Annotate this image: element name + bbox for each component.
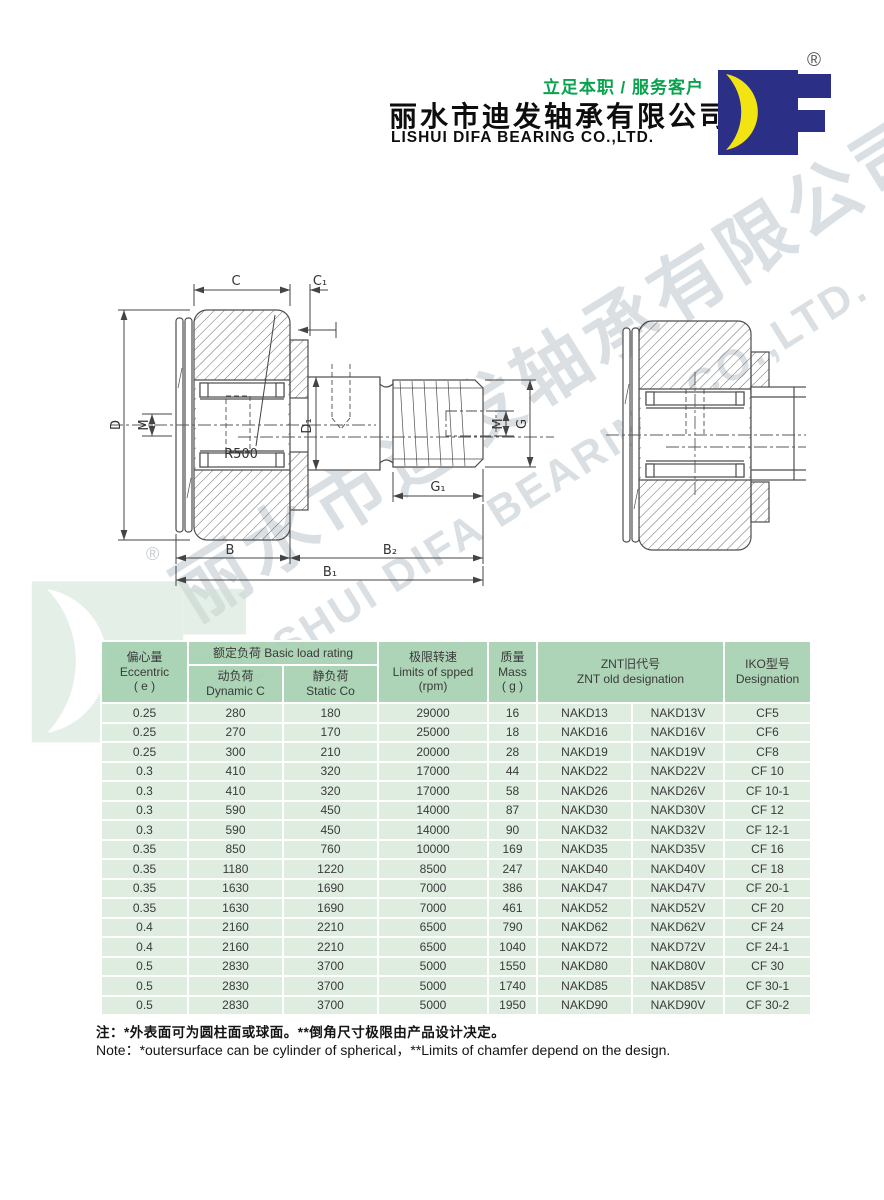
col-header-speed: 极限转速 Limits of spped (rpm) bbox=[378, 641, 488, 703]
table-cell: 2830 bbox=[188, 996, 283, 1016]
table-cell: NAKD47 bbox=[537, 879, 632, 899]
header-line: Static Co bbox=[284, 684, 377, 699]
table-cell: NAKD40V bbox=[632, 859, 724, 879]
dim-label-r500: R500 bbox=[224, 447, 258, 462]
table-cell: 461 bbox=[488, 898, 537, 918]
table-cell: CF 30-2 bbox=[724, 996, 811, 1016]
header-line: Designation bbox=[725, 672, 810, 687]
table-cell: 2160 bbox=[188, 937, 283, 957]
table-cell: 44 bbox=[488, 762, 537, 782]
table-cell: NAKD30V bbox=[632, 801, 724, 821]
table-cell: CF 16 bbox=[724, 840, 811, 860]
table-cell: 14000 bbox=[378, 801, 488, 821]
table-cell: CF 10 bbox=[724, 762, 811, 782]
table-cell: CF 18 bbox=[724, 859, 811, 879]
table-cell: NAKD19 bbox=[537, 742, 632, 762]
table-cell: 0.4 bbox=[101, 918, 188, 938]
table-cell: 0.5 bbox=[101, 996, 188, 1016]
table-cell: CF 12 bbox=[724, 801, 811, 821]
table-cell: 0.25 bbox=[101, 742, 188, 762]
table-cell: CF 24 bbox=[724, 918, 811, 938]
header-line: ZNT old designation bbox=[538, 672, 723, 687]
table-cell: 7000 bbox=[378, 898, 488, 918]
table-cell: 3700 bbox=[283, 996, 378, 1016]
table-cell: 5000 bbox=[378, 957, 488, 977]
table-row: 0.52830370050001740NAKD85NAKD85VCF 30-1 bbox=[101, 976, 811, 996]
header-line: 静负荷 bbox=[284, 669, 377, 684]
table-cell: NAKD35 bbox=[537, 840, 632, 860]
header-line: 极限转速 bbox=[379, 650, 487, 665]
table-row: 0.52830370050001550NAKD80NAKD80VCF 30 bbox=[101, 957, 811, 977]
table-cell: 790 bbox=[488, 918, 537, 938]
registered-trademark-icon: ® bbox=[807, 50, 821, 72]
table-cell: 247 bbox=[488, 859, 537, 879]
company-logo bbox=[710, 64, 835, 159]
header-line: (rpm) bbox=[379, 679, 487, 694]
table-cell: 6500 bbox=[378, 937, 488, 957]
table-row: 0.35163016907000461NAKD52NAKD52VCF 20 bbox=[101, 898, 811, 918]
table-cell: NAKD72 bbox=[537, 937, 632, 957]
dim-label-d: D bbox=[109, 420, 124, 430]
right-technical-drawing bbox=[606, 284, 806, 574]
table-cell: 450 bbox=[283, 820, 378, 840]
table-row: 0.252801802900016NAKD13NAKD13VCF5 bbox=[101, 703, 811, 723]
header-line: ZNT旧代号 bbox=[538, 657, 723, 672]
table-cell: 29000 bbox=[378, 703, 488, 723]
table-cell: NAKD47V bbox=[632, 879, 724, 899]
table-row: 0.253002102000028NAKD19NAKD19VCF8 bbox=[101, 742, 811, 762]
table-cell: NAKD85 bbox=[537, 976, 632, 996]
table-cell: 6500 bbox=[378, 918, 488, 938]
table-cell: 0.35 bbox=[101, 859, 188, 879]
table-cell: 180 bbox=[283, 703, 378, 723]
table-cell: 1220 bbox=[283, 859, 378, 879]
table-cell: 1690 bbox=[283, 879, 378, 899]
header-line: Dynamic C bbox=[189, 684, 282, 699]
table-cell: NAKD62V bbox=[632, 918, 724, 938]
note-en: Note：*outersurface can be cylinder of sp… bbox=[96, 1040, 670, 1060]
table-cell: NAKD90V bbox=[632, 996, 724, 1016]
table-row: 0.35904501400090NAKD32NAKD32VCF 12-1 bbox=[101, 820, 811, 840]
table-cell: 0.25 bbox=[101, 703, 188, 723]
table-cell: 0.3 bbox=[101, 820, 188, 840]
table-cell: NAKD22 bbox=[537, 762, 632, 782]
table-cell: CF 30-1 bbox=[724, 976, 811, 996]
table-cell: NAKD16V bbox=[632, 723, 724, 743]
table-cell: 0.3 bbox=[101, 762, 188, 782]
dim-label-g1: G₁ bbox=[430, 480, 445, 495]
header-line: Eccentric bbox=[102, 665, 187, 680]
table-cell: NAKD52 bbox=[537, 898, 632, 918]
table-cell: 58 bbox=[488, 781, 537, 801]
table-cell: NAKD90 bbox=[537, 996, 632, 1016]
table-cell: 0.5 bbox=[101, 957, 188, 977]
dim-label-m-right: M bbox=[491, 418, 506, 429]
table-row: 0.35904501400087NAKD30NAKD30VCF 12 bbox=[101, 801, 811, 821]
table-cell: 0.35 bbox=[101, 898, 188, 918]
header-line: Mass bbox=[489, 665, 536, 680]
table-cell: NAKD40 bbox=[537, 859, 632, 879]
table-cell: 16 bbox=[488, 703, 537, 723]
table-cell: NAKD19V bbox=[632, 742, 724, 762]
table-cell: 0.35 bbox=[101, 840, 188, 860]
dim-label-b: B bbox=[226, 543, 235, 558]
table-cell: 2160 bbox=[188, 918, 283, 938]
table-cell: 10000 bbox=[378, 840, 488, 860]
table-cell: 18 bbox=[488, 723, 537, 743]
table-cell: CF5 bbox=[724, 703, 811, 723]
table-row: 0.3585076010000169NAKD35NAKD35VCF 16 bbox=[101, 840, 811, 860]
table-cell: NAKD35V bbox=[632, 840, 724, 860]
table-cell: CF8 bbox=[724, 742, 811, 762]
table-cell: NAKD26V bbox=[632, 781, 724, 801]
col-header-dynamic: 动负荷 Dynamic C bbox=[188, 665, 283, 703]
table-cell: 2210 bbox=[283, 918, 378, 938]
table-cell: 280 bbox=[188, 703, 283, 723]
table-cell: 0.3 bbox=[101, 801, 188, 821]
table-cell: NAKD26 bbox=[537, 781, 632, 801]
header-line: 偏心量 bbox=[102, 650, 187, 665]
table-cell: 5000 bbox=[378, 976, 488, 996]
table-cell: 410 bbox=[188, 762, 283, 782]
table-row: 0.42160221065001040NAKD72NAKD72VCF 24-1 bbox=[101, 937, 811, 957]
table-row: 0.4216022106500790NAKD62NAKD62VCF 24 bbox=[101, 918, 811, 938]
table-cell: 169 bbox=[488, 840, 537, 860]
table-cell: 270 bbox=[188, 723, 283, 743]
header-line: 动负荷 bbox=[189, 669, 282, 684]
table-cell: 2210 bbox=[283, 937, 378, 957]
col-header-basic-load: 额定负荷 Basic load rating bbox=[188, 641, 378, 665]
table-row: 0.35163016907000386NAKD47NAKD47VCF 20-1 bbox=[101, 879, 811, 899]
table-cell: NAKD16 bbox=[537, 723, 632, 743]
table-cell: 1630 bbox=[188, 898, 283, 918]
header-line: IKO型号 bbox=[725, 657, 810, 672]
table-cell: 2830 bbox=[188, 976, 283, 996]
table-cell: 20000 bbox=[378, 742, 488, 762]
dim-label-b1: B₁ bbox=[323, 565, 337, 580]
spec-table-body: 0.252801802900016NAKD13NAKD13VCF50.25270… bbox=[101, 703, 811, 1015]
table-cell: 3700 bbox=[283, 957, 378, 977]
table-cell: 7000 bbox=[378, 879, 488, 899]
table-row: 0.252701702500018NAKD16NAKD16VCF6 bbox=[101, 723, 811, 743]
dim-label-d1: D₁ bbox=[300, 418, 315, 433]
table-cell: NAKD80V bbox=[632, 957, 724, 977]
table-cell: 450 bbox=[283, 801, 378, 821]
table-cell: 320 bbox=[283, 762, 378, 782]
table-cell: CF 20 bbox=[724, 898, 811, 918]
table-cell: 1630 bbox=[188, 879, 283, 899]
table-cell: 0.35 bbox=[101, 879, 188, 899]
table-cell: NAKD22V bbox=[632, 762, 724, 782]
table-cell: 410 bbox=[188, 781, 283, 801]
table-cell: 210 bbox=[283, 742, 378, 762]
dim-label-g: G bbox=[515, 419, 530, 429]
table-cell: 850 bbox=[188, 840, 283, 860]
table-cell: 0.4 bbox=[101, 937, 188, 957]
table-cell: CF 12-1 bbox=[724, 820, 811, 840]
table-cell: NAKD30 bbox=[537, 801, 632, 821]
table-row: 0.35118012208500247NAKD40NAKD40VCF 18 bbox=[101, 859, 811, 879]
table-cell: 28 bbox=[488, 742, 537, 762]
header-line: 质量 bbox=[489, 650, 536, 665]
dim-label-b2: B₂ bbox=[383, 543, 397, 558]
table-cell: 0.5 bbox=[101, 976, 188, 996]
table-cell: NAKD13 bbox=[537, 703, 632, 723]
col-header-znt: ZNT旧代号 ZNT old designation bbox=[537, 641, 724, 703]
spec-table-header: 偏心量 Eccentric ( e ) 额定负荷 Basic load rati… bbox=[101, 641, 811, 703]
col-header-mass: 质量 Mass ( g ) bbox=[488, 641, 537, 703]
table-cell: 1180 bbox=[188, 859, 283, 879]
dim-label-m-left: M bbox=[137, 419, 152, 430]
table-cell: 8500 bbox=[378, 859, 488, 879]
dim-label-c1: C₁ bbox=[313, 274, 327, 289]
table-cell: 760 bbox=[283, 840, 378, 860]
note-cn: 注：*外表面可为圆柱面或球面。**倒角尺寸极限由产品设计决定。 bbox=[96, 1021, 505, 1041]
left-technical-drawing: C C₁ D M R500 D₁ M G G₁ B B₂ B₁ bbox=[108, 268, 558, 598]
header-line: Limits of spped bbox=[379, 665, 487, 680]
table-cell: 5000 bbox=[378, 996, 488, 1016]
table-cell: NAKD32V bbox=[632, 820, 724, 840]
table-cell: 1690 bbox=[283, 898, 378, 918]
table-cell: NAKD13V bbox=[632, 703, 724, 723]
table-cell: CF 10-1 bbox=[724, 781, 811, 801]
company-name-en: LISHUI DIFA BEARING CO.,LTD. bbox=[391, 129, 654, 147]
table-cell: 1740 bbox=[488, 976, 537, 996]
table-row: 0.52830370050001950NAKD90NAKD90VCF 30-2 bbox=[101, 996, 811, 1016]
col-header-eccentric: 偏心量 Eccentric ( e ) bbox=[101, 641, 188, 703]
table-cell: CF 20-1 bbox=[724, 879, 811, 899]
table-cell: 1550 bbox=[488, 957, 537, 977]
table-cell: 0.3 bbox=[101, 781, 188, 801]
table-cell: NAKD72V bbox=[632, 937, 724, 957]
dim-label-c: C bbox=[231, 274, 240, 289]
table-cell: 1950 bbox=[488, 996, 537, 1016]
table-cell: 0.25 bbox=[101, 723, 188, 743]
table-cell: 25000 bbox=[378, 723, 488, 743]
table-cell: NAKD32 bbox=[537, 820, 632, 840]
table-cell: CF 24-1 bbox=[724, 937, 811, 957]
spec-table: 偏心量 Eccentric ( e ) 额定负荷 Basic load rati… bbox=[100, 640, 812, 1016]
table-cell: 170 bbox=[283, 723, 378, 743]
table-cell: 300 bbox=[188, 742, 283, 762]
col-header-static: 静负荷 Static Co bbox=[283, 665, 378, 703]
table-cell: 386 bbox=[488, 879, 537, 899]
table-cell: 90 bbox=[488, 820, 537, 840]
col-header-iko: IKO型号 Designation bbox=[724, 641, 811, 703]
table-cell: 87 bbox=[488, 801, 537, 821]
table-row: 0.34103201700058NAKD26NAKD26VCF 10-1 bbox=[101, 781, 811, 801]
table-cell: 590 bbox=[188, 820, 283, 840]
table-cell: CF 30 bbox=[724, 957, 811, 977]
table-cell: 17000 bbox=[378, 781, 488, 801]
table-cell: NAKD85V bbox=[632, 976, 724, 996]
table-cell: NAKD52V bbox=[632, 898, 724, 918]
table-cell: 320 bbox=[283, 781, 378, 801]
catalog-page: 丽水市迪发轴承有限公司 LISHUI DIFA BEARING CO.,LTD.… bbox=[0, 0, 884, 1200]
table-cell: NAKD62 bbox=[537, 918, 632, 938]
table-cell: 590 bbox=[188, 801, 283, 821]
header-line: ( e ) bbox=[102, 679, 187, 694]
table-cell: 3700 bbox=[283, 976, 378, 996]
header-line: ( g ) bbox=[489, 679, 536, 694]
table-cell: 1040 bbox=[488, 937, 537, 957]
table-cell: NAKD80 bbox=[537, 957, 632, 977]
table-cell: CF6 bbox=[724, 723, 811, 743]
table-row: 0.34103201700044NAKD22NAKD22VCF 10 bbox=[101, 762, 811, 782]
table-cell: 17000 bbox=[378, 762, 488, 782]
table-cell: 2830 bbox=[188, 957, 283, 977]
table-cell: 14000 bbox=[378, 820, 488, 840]
